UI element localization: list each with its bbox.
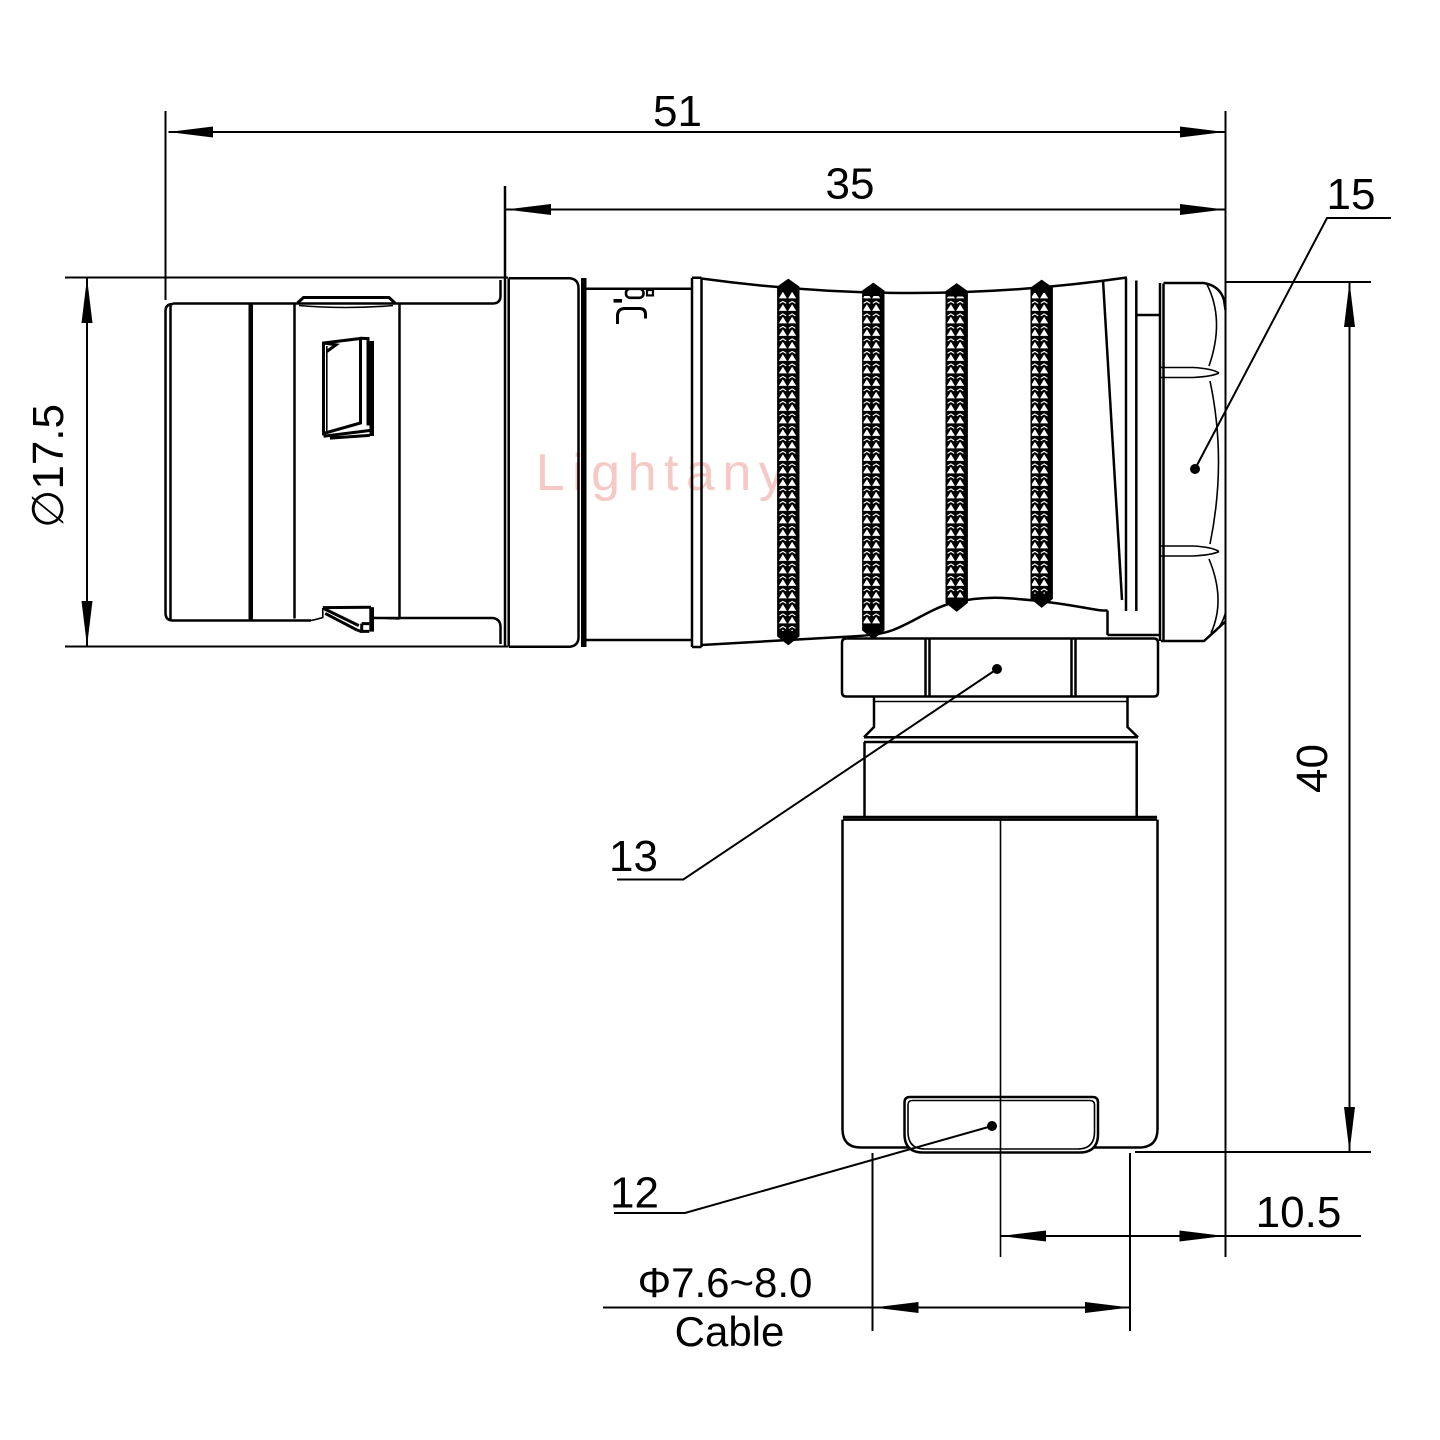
svg-text:13: 13 <box>609 832 658 881</box>
svg-text:10.5: 10.5 <box>1256 1188 1342 1237</box>
svg-text:Φ7.6~8.0: Φ7.6~8.0 <box>638 1259 813 1306</box>
svg-text:40: 40 <box>1288 744 1337 793</box>
svg-text:35: 35 <box>826 160 875 209</box>
svg-text:Cable: Cable <box>675 1308 785 1355</box>
svg-text:15: 15 <box>1327 170 1376 219</box>
svg-text:51: 51 <box>653 87 702 136</box>
svg-text:Lightany: Lightany <box>536 444 793 502</box>
svg-text:∅17.5: ∅17.5 <box>24 404 73 528</box>
svg-text:12: 12 <box>610 1169 659 1218</box>
